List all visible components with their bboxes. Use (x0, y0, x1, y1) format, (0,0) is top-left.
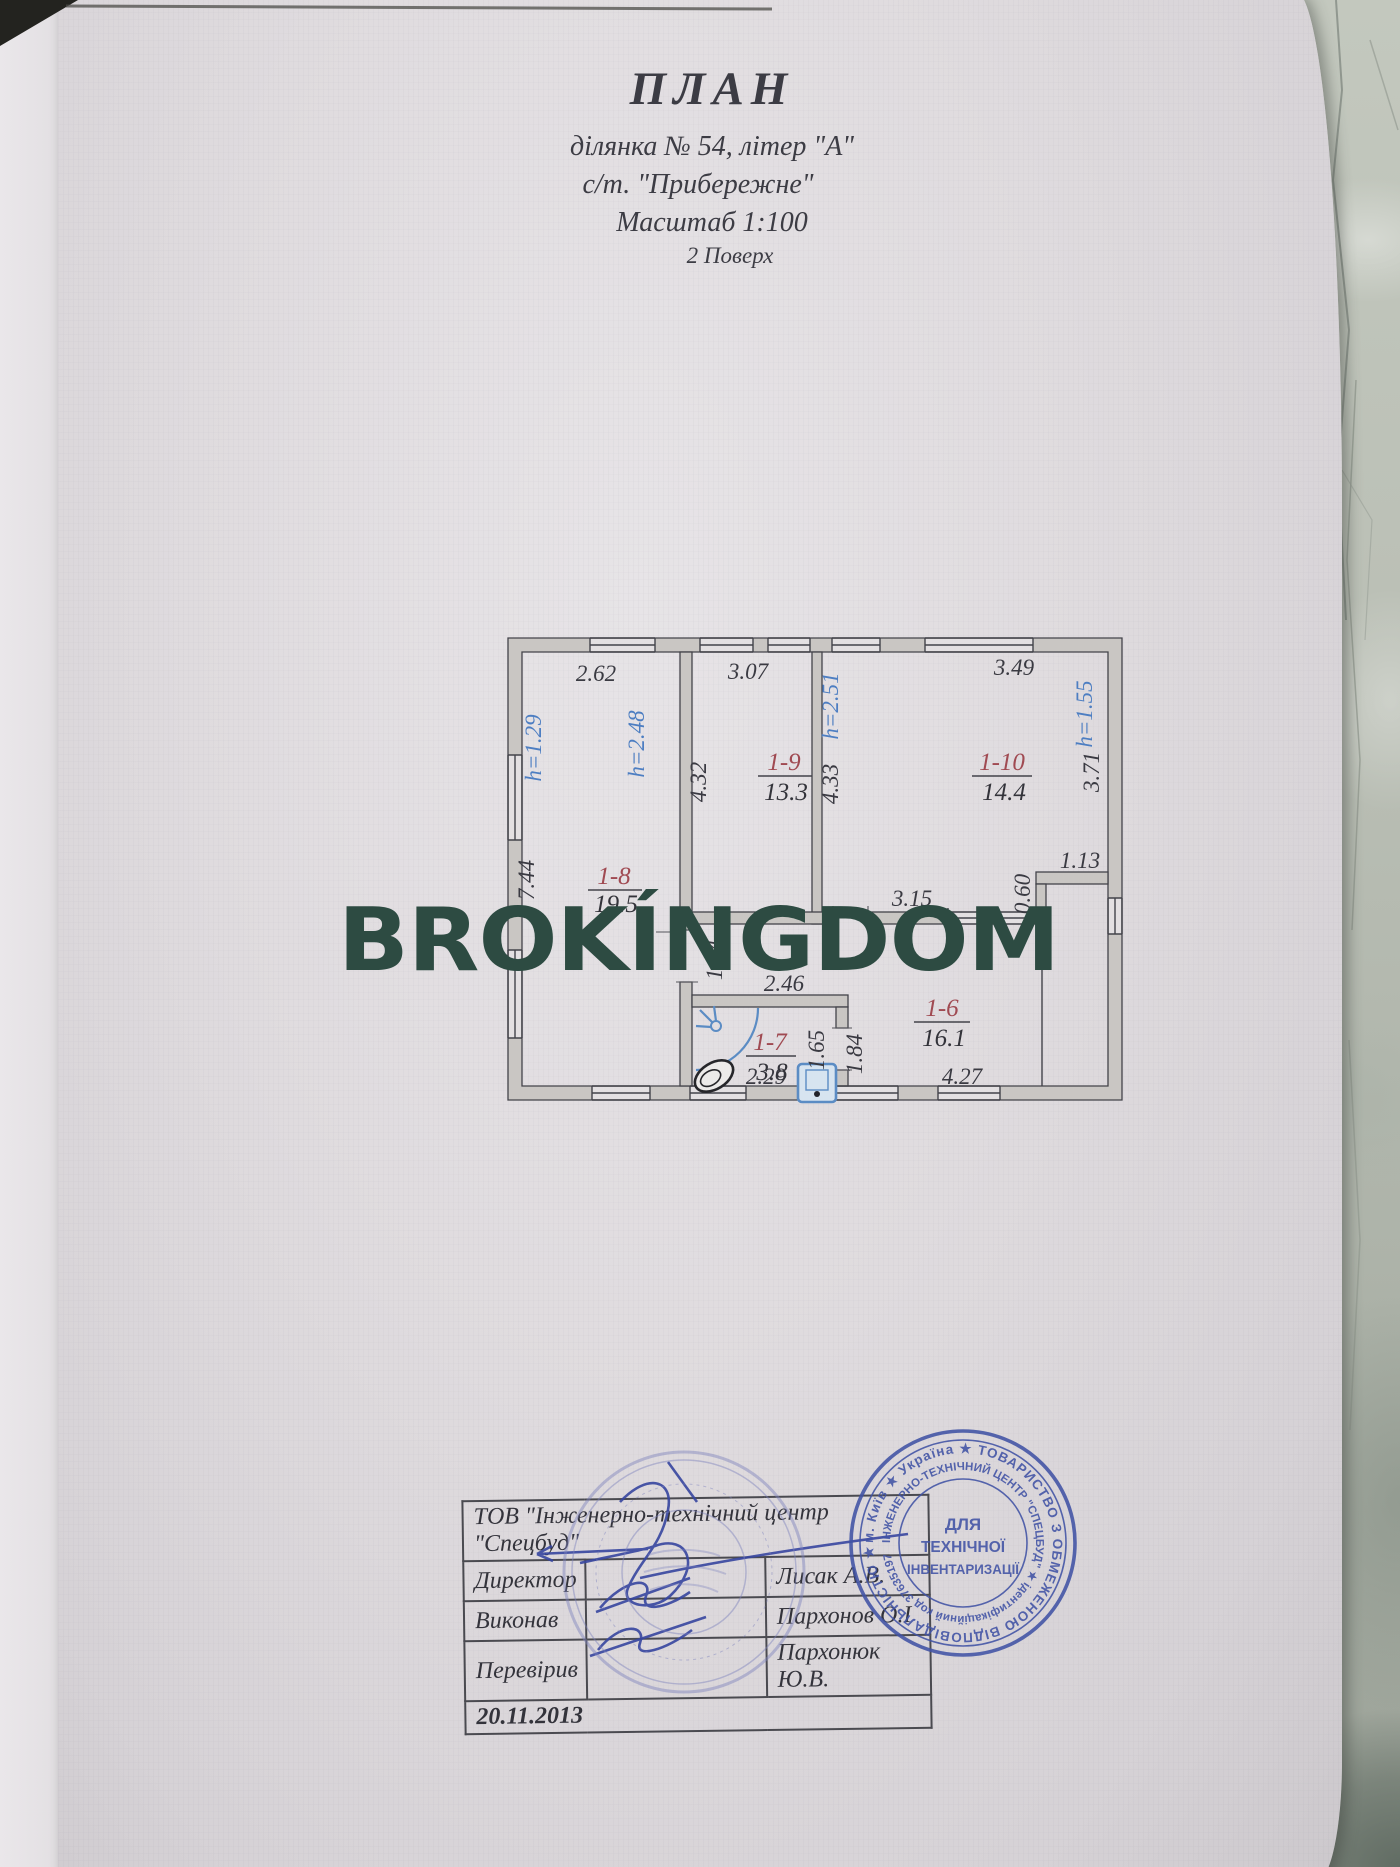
room-label-1-9: 1-9 13.3 (758, 749, 812, 806)
page-title: ПЛАН (0, 62, 1400, 116)
wall-left-room-lower (680, 982, 692, 1086)
svg-text:1-6: 1-6 (925, 995, 959, 1022)
brokingdom-watermark: BROKÍNGDOM (338, 889, 1078, 991)
photographed-document: ПЛАН ділянка № 54, літер "А" с/т. "Прибе… (0, 0, 1400, 1867)
svg-text:1-9: 1-9 (767, 749, 801, 776)
role-label: Виконав (464, 1600, 586, 1642)
dim-label: 3.07 (727, 659, 770, 684)
table-row: Перевірив Пархонюк Ю.В. (464, 1635, 931, 1702)
dim-label: 1.65 (804, 1030, 829, 1070)
svg-text:16.1: 16.1 (922, 1025, 966, 1052)
role-label: Перевірив (464, 1640, 587, 1702)
signature-cell (586, 1637, 767, 1700)
niche-wall-horizontal (1036, 872, 1108, 884)
person-name: Пархонов О.І (766, 1595, 931, 1637)
organization-name: ТОВ "Інженерно-технічний центр "Спецбуд" (462, 1495, 929, 1562)
floor-plan: 2.62 3.07 3.49 1.13 2.46 2.29 4.27 3.15 … (490, 620, 1150, 1120)
title-scale: Масштаб 1:100 (0, 207, 1400, 239)
svg-text:1-8: 1-8 (597, 863, 631, 890)
table-row: Директор Лисак А.В. (463, 1555, 930, 1602)
role-label: Директор (463, 1560, 585, 1602)
svg-text:1-7: 1-7 (753, 1029, 788, 1056)
title-plot: ділянка № 54, літер "А" (0, 131, 1400, 163)
svg-text:14.4: 14.4 (982, 779, 1026, 806)
bathroom-right-wall-upper (836, 1007, 848, 1028)
height-label: h=2.51 (818, 672, 843, 739)
date-value: 20.11.2013 (465, 1695, 931, 1735)
dim-label: 2.62 (576, 661, 616, 686)
dim-label: 1.13 (1060, 848, 1100, 873)
height-label: h=2.48 (624, 710, 649, 778)
height-label: h=1.55 (1072, 680, 1097, 747)
dim-label: 3.71 (1079, 752, 1104, 793)
room-label-1-10: 1-10 14.4 (972, 749, 1032, 806)
signature-table: ТОВ "Інженерно-технічний центр "Спецбуд"… (461, 1494, 932, 1736)
dim-label: 1.84 (842, 1034, 867, 1074)
person-name: Лисак А.В. (765, 1555, 930, 1597)
window-icon-right (1108, 898, 1122, 934)
title-settlement: с/т. "Прибережне" (0, 169, 1400, 201)
shower-head-icon (696, 1006, 721, 1031)
dim-label: 3.49 (993, 655, 1035, 680)
person-name: Пархонюк Ю.В. (766, 1635, 931, 1697)
title-floor: 2 Поверх (18, 243, 1400, 269)
table-date-row: 20.11.2013 (465, 1695, 931, 1735)
dim-label: 4.32 (686, 762, 711, 802)
signature-cell (585, 1557, 765, 1600)
dim-label: 4.27 (942, 1064, 984, 1089)
room-label-1-6: 1-6 16.1 (914, 995, 970, 1052)
svg-text:1-10: 1-10 (979, 749, 1025, 776)
svg-text:3.8: 3.8 (755, 1059, 788, 1086)
dim-label: 4.33 (818, 764, 843, 804)
table-header-row: ТОВ "Інженерно-технічний центр "Спецбуд" (462, 1495, 929, 1562)
signature-cell (586, 1597, 766, 1640)
table-row: Виконав Пархонов О.І (464, 1595, 931, 1642)
svg-text:13.3: 13.3 (764, 779, 808, 806)
bathroom-top-wall (692, 995, 848, 1007)
height-label: h=1.29 (521, 714, 546, 782)
